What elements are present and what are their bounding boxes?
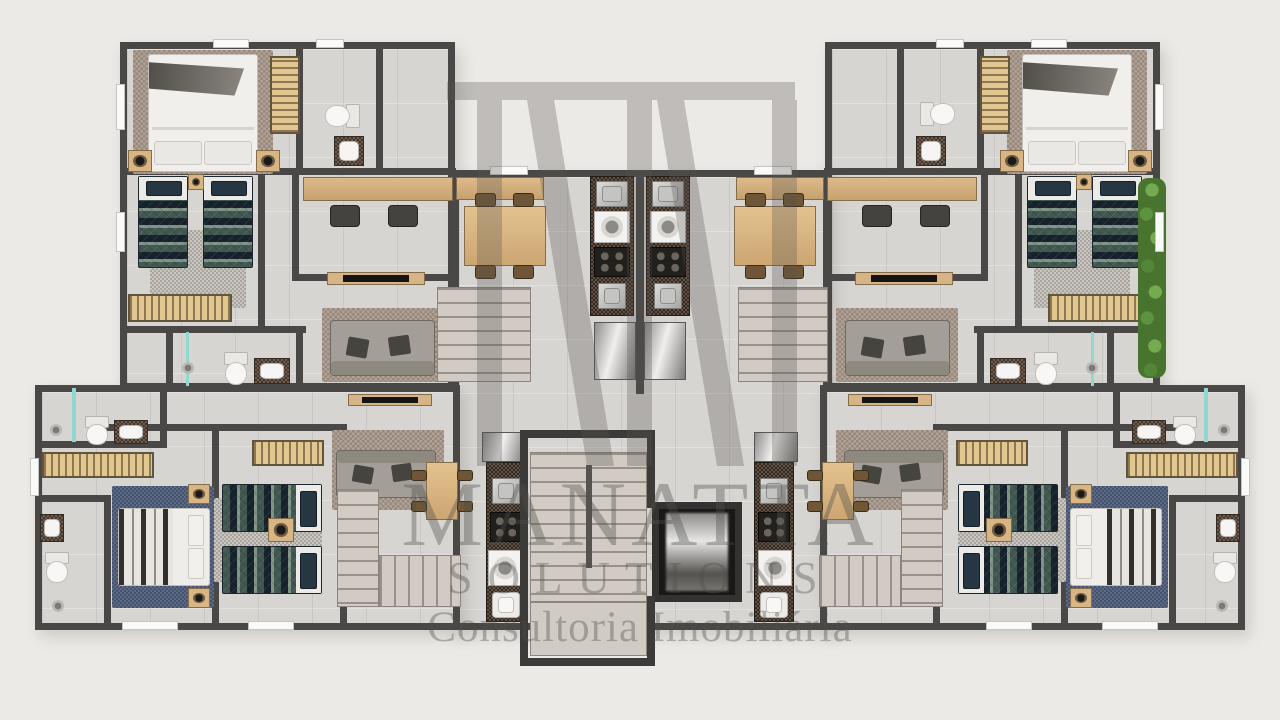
fridge bbox=[644, 322, 686, 380]
window-sill bbox=[316, 39, 344, 48]
shower-head bbox=[182, 362, 194, 374]
nightstand bbox=[268, 518, 294, 542]
office-chair bbox=[862, 205, 892, 227]
window-sill bbox=[116, 212, 125, 252]
double-bed-top-left bbox=[148, 54, 258, 172]
office-desk-top-right bbox=[827, 177, 977, 201]
wall bbox=[1169, 495, 1176, 630]
nightstand bbox=[1070, 588, 1092, 608]
window-sill bbox=[1241, 458, 1250, 496]
kitchen-sink bbox=[654, 283, 682, 309]
wall bbox=[1113, 385, 1120, 445]
double-bed-top-right bbox=[1022, 54, 1132, 172]
washing-machine bbox=[758, 550, 792, 586]
bathroom-sink bbox=[916, 136, 946, 166]
office-desk-top-left bbox=[303, 177, 453, 201]
kitchen-sink bbox=[596, 181, 628, 207]
wardrobe bbox=[42, 452, 154, 478]
tv-console bbox=[848, 394, 932, 406]
toilet bbox=[326, 102, 360, 128]
window-sill bbox=[122, 621, 178, 630]
nightstand bbox=[188, 588, 210, 608]
staircase bbox=[819, 555, 901, 607]
toilet bbox=[920, 102, 954, 128]
twin-bed bbox=[222, 546, 322, 594]
office-chair bbox=[330, 205, 360, 227]
wall bbox=[35, 495, 111, 502]
wall bbox=[292, 172, 299, 280]
stairwell-wall bbox=[647, 596, 655, 666]
staircase bbox=[337, 489, 379, 607]
nightstand bbox=[1000, 150, 1024, 172]
washing-machine bbox=[650, 211, 686, 243]
twin-bed bbox=[1027, 176, 1077, 268]
stairwell-wall bbox=[520, 430, 528, 666]
window-sill bbox=[754, 166, 792, 175]
kitchen-sink bbox=[598, 283, 626, 309]
floor-plan-render: MANATTA SOLUTIONS Consultoria Imobiliári… bbox=[0, 0, 1280, 720]
window-sill bbox=[1102, 621, 1158, 630]
shower-glass bbox=[1204, 388, 1208, 442]
elevator bbox=[652, 502, 742, 602]
wall bbox=[104, 495, 111, 630]
wall bbox=[897, 42, 904, 172]
nightstand bbox=[188, 484, 210, 504]
stove bbox=[650, 247, 686, 277]
tv-console bbox=[348, 394, 432, 406]
wall bbox=[160, 385, 167, 445]
stove bbox=[594, 247, 630, 277]
wardrobe bbox=[128, 294, 232, 322]
bathroom-sink bbox=[254, 358, 290, 384]
tv-console bbox=[327, 272, 425, 285]
wall bbox=[120, 326, 306, 333]
fridge bbox=[754, 432, 798, 462]
wardrobe bbox=[980, 56, 1010, 134]
toilet bbox=[1172, 416, 1196, 444]
shower-glass bbox=[72, 388, 76, 442]
nightstand bbox=[986, 518, 1012, 542]
twin-bed bbox=[203, 176, 253, 268]
wardrobe bbox=[1126, 452, 1238, 478]
toilet bbox=[1032, 352, 1058, 384]
window-sill bbox=[1155, 84, 1164, 130]
shower-head bbox=[50, 424, 62, 436]
shower-head bbox=[1216, 600, 1228, 612]
wardrobe bbox=[1048, 294, 1152, 322]
twin-bed bbox=[138, 176, 188, 268]
wall bbox=[1169, 495, 1245, 502]
stove bbox=[758, 512, 790, 542]
staircase bbox=[901, 489, 943, 607]
window-sill bbox=[1031, 39, 1067, 48]
stove bbox=[490, 512, 522, 542]
stairwell-wall bbox=[520, 430, 655, 438]
wall bbox=[636, 170, 644, 394]
stairwell-wall bbox=[520, 658, 655, 666]
toilet bbox=[44, 552, 68, 582]
twin-bed bbox=[958, 546, 1058, 594]
wall bbox=[296, 330, 303, 390]
plant-wall bbox=[1138, 178, 1166, 378]
double-bed-bottom-right bbox=[1070, 508, 1162, 586]
wardrobe bbox=[252, 440, 324, 466]
stair-landing bbox=[530, 602, 647, 656]
bathroom-sink bbox=[40, 514, 64, 542]
sofa bbox=[330, 320, 435, 376]
wardrobe bbox=[270, 56, 300, 134]
stairwell-wall bbox=[647, 430, 655, 508]
stairwell-stairs bbox=[530, 452, 647, 602]
toilet bbox=[84, 416, 108, 444]
wall bbox=[1107, 330, 1114, 390]
wall bbox=[981, 172, 988, 280]
shower-glass bbox=[1091, 332, 1094, 386]
shower-head bbox=[52, 600, 64, 612]
window-sill bbox=[248, 621, 294, 630]
nightstand bbox=[1128, 150, 1152, 172]
staircase bbox=[738, 287, 828, 382]
dining-table-left bbox=[464, 206, 546, 266]
nightstand bbox=[256, 150, 280, 172]
wall bbox=[166, 330, 173, 390]
office-chair bbox=[920, 205, 950, 227]
dining-table-right bbox=[734, 206, 816, 266]
window-sill bbox=[1155, 212, 1164, 252]
double-bed-bottom-left bbox=[118, 508, 210, 586]
nightstand bbox=[128, 150, 152, 172]
laundry-sink bbox=[760, 592, 788, 618]
bathroom-sink bbox=[334, 136, 364, 166]
wall bbox=[1015, 172, 1022, 330]
kitchen-sink bbox=[652, 181, 684, 207]
wardrobe bbox=[956, 440, 1028, 466]
shower-head bbox=[1218, 424, 1230, 436]
toilet bbox=[1212, 552, 1236, 582]
tv-console bbox=[855, 272, 953, 285]
wall bbox=[977, 330, 984, 390]
staircase bbox=[437, 287, 531, 382]
washing-machine bbox=[488, 550, 522, 586]
wall bbox=[258, 172, 265, 330]
bathroom-sink bbox=[114, 420, 148, 444]
bathroom-sink bbox=[990, 358, 1026, 384]
dining-table-bottom-right bbox=[822, 462, 854, 520]
window-sill bbox=[986, 621, 1032, 630]
window-sill bbox=[490, 166, 528, 175]
nightstand bbox=[1070, 484, 1092, 504]
staircase bbox=[379, 555, 461, 607]
nightstand bbox=[1076, 174, 1092, 190]
shower-glass bbox=[186, 332, 189, 386]
laundry-sink bbox=[492, 592, 520, 618]
wall bbox=[974, 326, 1160, 333]
bathroom-sink bbox=[1216, 514, 1240, 542]
washing-machine bbox=[594, 211, 630, 243]
sofa bbox=[845, 320, 950, 376]
kitchen-sink bbox=[492, 478, 520, 504]
dining-table-bottom-left bbox=[426, 462, 458, 520]
shower-head bbox=[1086, 362, 1098, 374]
office-chair bbox=[388, 205, 418, 227]
window-sill bbox=[936, 39, 964, 48]
kitchen-sink bbox=[760, 478, 788, 504]
fridge bbox=[594, 322, 636, 380]
window-sill bbox=[30, 458, 39, 496]
toilet bbox=[222, 352, 248, 384]
wall bbox=[376, 42, 383, 172]
window-sill bbox=[213, 39, 249, 48]
nightstand bbox=[188, 174, 204, 190]
twin-bed bbox=[1092, 176, 1142, 268]
window-sill bbox=[116, 84, 125, 130]
bathroom-sink bbox=[1132, 420, 1166, 444]
